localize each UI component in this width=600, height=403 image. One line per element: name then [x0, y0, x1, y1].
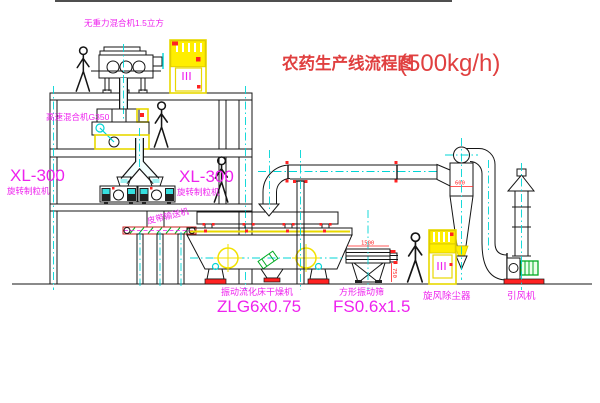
worker-ground: [408, 233, 423, 282]
dim-sieve-width: 1500: [361, 241, 374, 247]
induced-draft-fan: [504, 258, 544, 284]
dim-cyclone: 600: [455, 181, 465, 187]
fluid-bed-dryer: [187, 212, 352, 284]
cad-flow-diagram: 无重力混合机1.5立方 农药生产线流程图 (500kg/h) 高速混合机G350…: [0, 0, 600, 403]
exhaust-riser-duct: [259, 150, 290, 216]
label-dryer-name: 振动流化床干燥机: [221, 286, 293, 297]
title-cn: 农药生产线流程图: [281, 53, 414, 73]
title-capacity: (500kg/h): [399, 50, 500, 77]
label-granulator-left-model: XL-300: [10, 166, 65, 185]
diagram-canvas: 无重力混合机1.5立方 农药生产线流程图 (500kg/h) 高速混合机G350…: [0, 0, 600, 403]
label-granulator-left-name: 旋转制粒机: [7, 186, 50, 196]
label-high-speed-mixer: 高速混合机G350: [46, 112, 110, 122]
label-granulator-right-model: XL-300: [179, 167, 234, 186]
worker-roof: [76, 47, 89, 91]
control-cabinet: [429, 230, 456, 284]
label-sieve-model: FS0.6x1.5: [333, 297, 411, 316]
granulator-left: [100, 177, 137, 204]
label-top-mixer: 无重力混合机1.5立方: [84, 18, 164, 28]
conveyor-support-columns: [137, 232, 184, 286]
label-cyclone: 旋风除尘器: [423, 290, 471, 302]
bucket-elevator: [170, 40, 206, 93]
dim-sieve-side: 750: [391, 268, 397, 278]
square-vibrating-sieve: [346, 210, 398, 290]
label-dryer-model: ZLG6x0.75: [217, 297, 301, 316]
granulator-right: [138, 177, 175, 204]
label-granulator-right-name: 旋转制粒机: [177, 187, 220, 197]
label-sieve-name: 方形振动筛: [339, 286, 384, 297]
label-fan: 引风机: [507, 290, 536, 302]
belt-conveyor: [123, 227, 196, 234]
worker-floor2: [154, 102, 167, 147]
